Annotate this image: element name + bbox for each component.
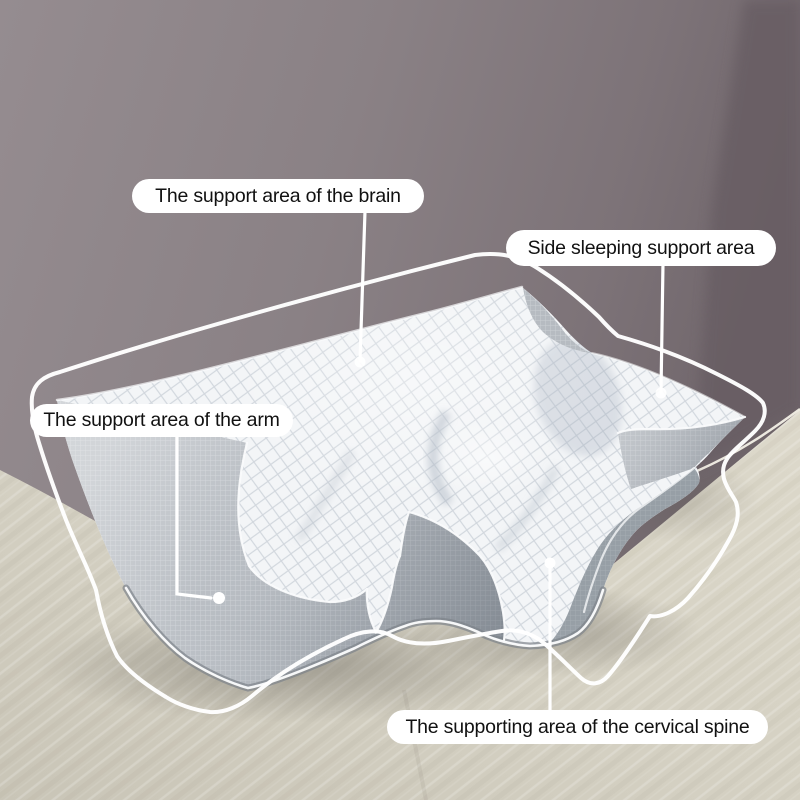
label-brain-support-text: The support area of the brain bbox=[155, 185, 401, 208]
label-brain-support: The support area of the brain bbox=[132, 179, 424, 213]
leader-dot-cervical bbox=[545, 558, 556, 569]
leader-dot-arm bbox=[213, 592, 225, 604]
label-arm-support-text: The support area of the arm bbox=[43, 409, 279, 432]
pillow-illustration bbox=[0, 0, 800, 800]
label-arm-support: The support area of the arm bbox=[30, 404, 293, 437]
product-photo: The support area of the brain Side sleep… bbox=[0, 0, 800, 800]
label-cervical-spine-support-text: The supporting area of the cervical spin… bbox=[405, 716, 749, 739]
leader-dot-brain bbox=[355, 357, 366, 368]
leader-dot-side bbox=[656, 388, 667, 399]
leader-line-side bbox=[661, 263, 663, 392]
label-cervical-spine-support: The supporting area of the cervical spin… bbox=[387, 710, 768, 744]
label-side-sleeping-support: Side sleeping support area bbox=[506, 230, 776, 266]
label-side-sleeping-support-text: Side sleeping support area bbox=[528, 237, 755, 260]
